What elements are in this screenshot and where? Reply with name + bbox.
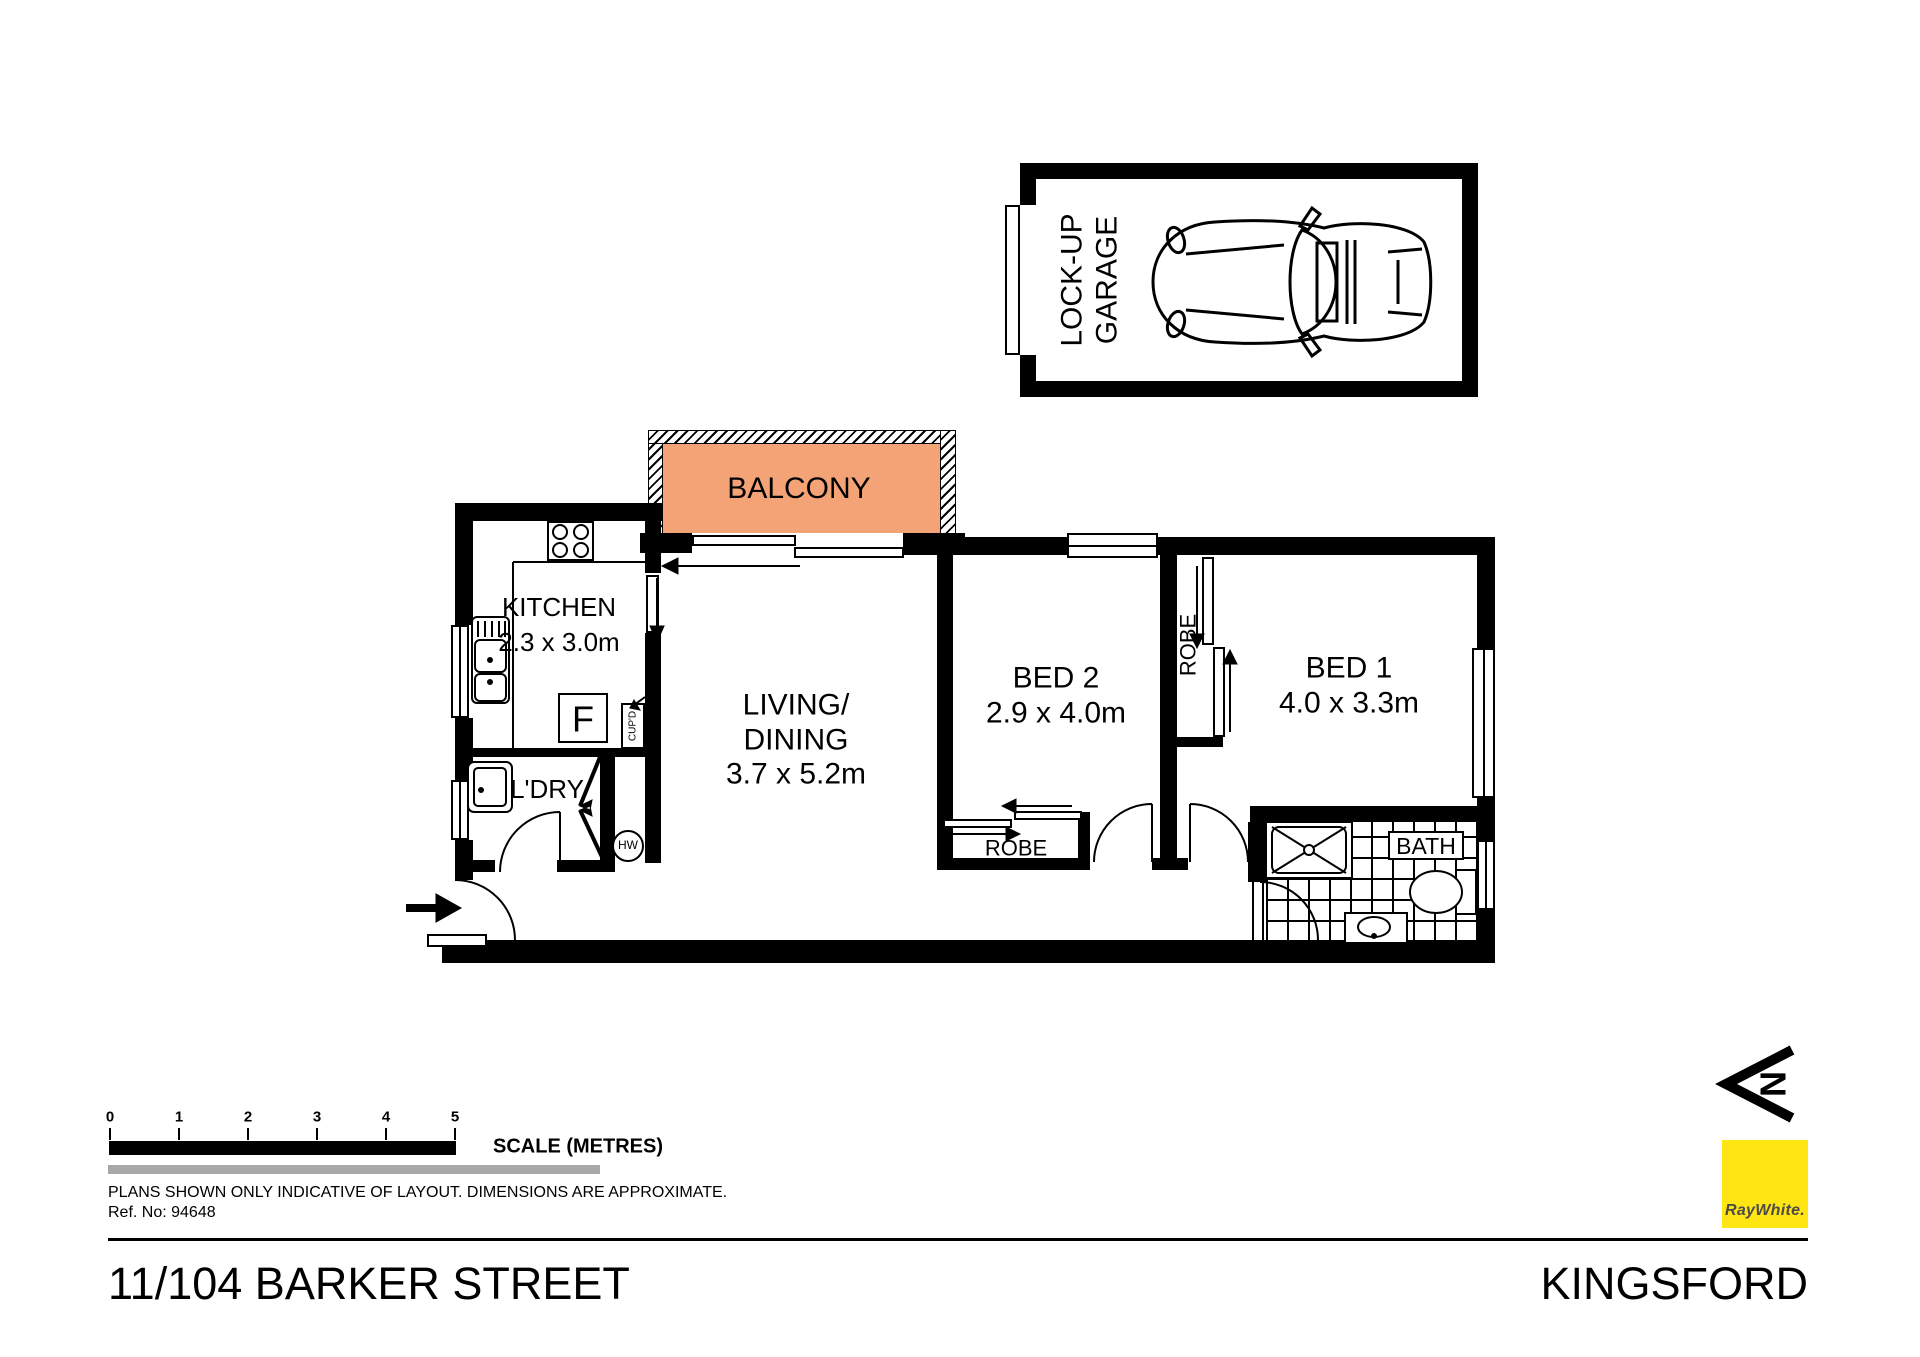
kitchen-living-wall-3 bbox=[645, 703, 661, 863]
bed2-robe-panel-2 bbox=[1014, 811, 1082, 820]
scale-label: SCALE (METRES) bbox=[493, 1136, 663, 1159]
grey-underline bbox=[108, 1165, 600, 1174]
bottom-wall bbox=[442, 940, 1495, 963]
garage-door bbox=[1005, 205, 1020, 355]
bed2-window bbox=[1067, 533, 1158, 558]
scale-tick-label-0: 0 bbox=[106, 1108, 114, 1125]
floorplan-page: LOCK-UP GARAGE BALCONY ROBE ROBE bbox=[0, 0, 1920, 1357]
bed1-robe-label: ROBE bbox=[1175, 614, 1200, 676]
bath-window bbox=[1477, 840, 1495, 910]
garage-label-line2: GARAGE bbox=[1090, 213, 1125, 346]
north-letter: N bbox=[1752, 1071, 1793, 1097]
balcony-label: BALCONY bbox=[727, 472, 870, 507]
raywhite-logo-text: RayWhite. bbox=[1725, 1202, 1805, 1228]
garage-label: LOCK-UP GARAGE bbox=[1056, 213, 1125, 346]
bed1-robe-panel-2 bbox=[1213, 647, 1225, 737]
hot-water-label: HW bbox=[618, 839, 638, 853]
scale-tick-label-3: 3 bbox=[313, 1108, 321, 1125]
footer-divider bbox=[108, 1238, 1808, 1241]
car-icon bbox=[1153, 208, 1431, 356]
hall-wall-center bbox=[1152, 858, 1188, 870]
bed1-name: BED 1 bbox=[1279, 652, 1419, 687]
scale-tick-2 bbox=[247, 1128, 249, 1140]
kitchen-window bbox=[451, 625, 469, 718]
balcony-railing-right bbox=[940, 430, 956, 535]
bed2-robe-label: ROBE bbox=[985, 835, 1047, 860]
scale-bar bbox=[109, 1141, 456, 1155]
scale-tick-3 bbox=[316, 1128, 318, 1140]
kitchen-name: KITCHEN bbox=[502, 593, 616, 623]
right-wall-3 bbox=[1477, 910, 1495, 963]
fridge-label: F bbox=[572, 698, 594, 739]
entry-arrow-icon bbox=[406, 894, 461, 922]
balcony-slider-panel-2 bbox=[794, 547, 904, 558]
scale-tick-label-1: 1 bbox=[175, 1108, 183, 1125]
address-title: 11/104 BARKER STREET bbox=[108, 1258, 630, 1310]
left-wall-1 bbox=[455, 521, 473, 625]
laundry-right-wall bbox=[600, 757, 615, 860]
kitchen-living-wall-1 bbox=[645, 521, 661, 573]
laundry-tub-icon bbox=[468, 762, 512, 812]
kitchen-label: KITCHEN bbox=[502, 593, 616, 623]
balcony-slider-panel-1 bbox=[692, 535, 796, 546]
top-wall-bed1 bbox=[1158, 537, 1495, 555]
bed2-dims: 2.9 x 4.0m bbox=[986, 696, 1126, 731]
scale-tick-1 bbox=[178, 1128, 180, 1140]
bed2-robe-panel-1 bbox=[943, 819, 1012, 828]
scale-tick-4 bbox=[385, 1128, 387, 1140]
bed1-robe-bottom-wall bbox=[1177, 737, 1223, 747]
scale-tick-label-4: 4 bbox=[382, 1108, 390, 1125]
laundry-window bbox=[451, 780, 469, 840]
raywhite-logo: RayWhite. bbox=[1722, 1140, 1808, 1228]
bed1-label: BED 1 4.0 x 3.3m bbox=[1279, 652, 1419, 721]
bed1-window bbox=[1472, 648, 1495, 798]
kitchen-dims: 2.3 x 3.0m bbox=[498, 628, 619, 658]
laundry-bifold-door bbox=[580, 757, 602, 857]
scale-tick-0 bbox=[109, 1128, 111, 1140]
bed2-bed1-wall bbox=[1160, 537, 1177, 858]
scale-tick-5 bbox=[454, 1128, 456, 1140]
laundry-bottom-wall-1 bbox=[455, 860, 495, 872]
cupboard-label: CUP'D bbox=[627, 711, 639, 741]
ref-number: Ref. No: 94648 bbox=[108, 1204, 216, 1222]
door-swings bbox=[455, 804, 1318, 940]
right-wall-2 bbox=[1477, 798, 1495, 840]
kitchen-slider-panel bbox=[646, 575, 659, 633]
garage-wall-top bbox=[1020, 163, 1478, 179]
entry-door-leaf bbox=[427, 934, 487, 947]
garage-wall-bottom bbox=[1020, 381, 1478, 397]
garage-wall-left-bottom bbox=[1020, 355, 1036, 397]
scale-tick-label-2: 2 bbox=[244, 1108, 252, 1125]
bath-wall-top bbox=[1250, 806, 1477, 822]
living-name-line1: LIVING/ bbox=[726, 688, 866, 723]
bed2-label: BED 2 2.9 x 4.0m bbox=[986, 662, 1126, 731]
living-name-line2: DINING bbox=[726, 723, 866, 758]
bath-wall-left-upper bbox=[1248, 822, 1266, 882]
bed2-name: BED 2 bbox=[986, 662, 1126, 697]
scale-tick-label-5: 5 bbox=[451, 1108, 459, 1125]
bath-wall-left-lower bbox=[1248, 940, 1266, 963]
suburb-title: KINGSFORD bbox=[1540, 1258, 1808, 1310]
kitchen-laundry-wall bbox=[455, 748, 645, 757]
garage-label-line1: LOCK-UP bbox=[1056, 213, 1091, 346]
right-wall-1 bbox=[1477, 555, 1495, 648]
bath-door-leaf bbox=[1252, 880, 1264, 942]
stove-icon bbox=[548, 522, 593, 560]
kitchen-wall-top bbox=[455, 503, 662, 521]
bed1-dims: 4.0 x 3.3m bbox=[1279, 686, 1419, 721]
disclaimer-text: PLANS SHOWN ONLY INDICATIVE OF LAYOUT. D… bbox=[108, 1184, 727, 1202]
garage-wall-right bbox=[1462, 179, 1478, 381]
living-dims: 3.7 x 5.2m bbox=[726, 757, 866, 792]
garage-wall-left-top bbox=[1020, 163, 1036, 205]
laundry-label: L'DRY bbox=[510, 775, 584, 805]
bed1-robe-panel-1 bbox=[1202, 557, 1214, 645]
bath-label: BATH bbox=[1396, 833, 1456, 859]
laundry-bottom-wall-2 bbox=[557, 860, 615, 872]
kitchen-living-wall-2 bbox=[645, 633, 661, 703]
living-label: LIVING/ DINING 3.7 x 5.2m bbox=[726, 688, 866, 792]
balcony-railing-top bbox=[648, 430, 956, 444]
top-wall-bed2-left bbox=[942, 537, 1067, 555]
living-bed2-wall bbox=[937, 537, 953, 858]
